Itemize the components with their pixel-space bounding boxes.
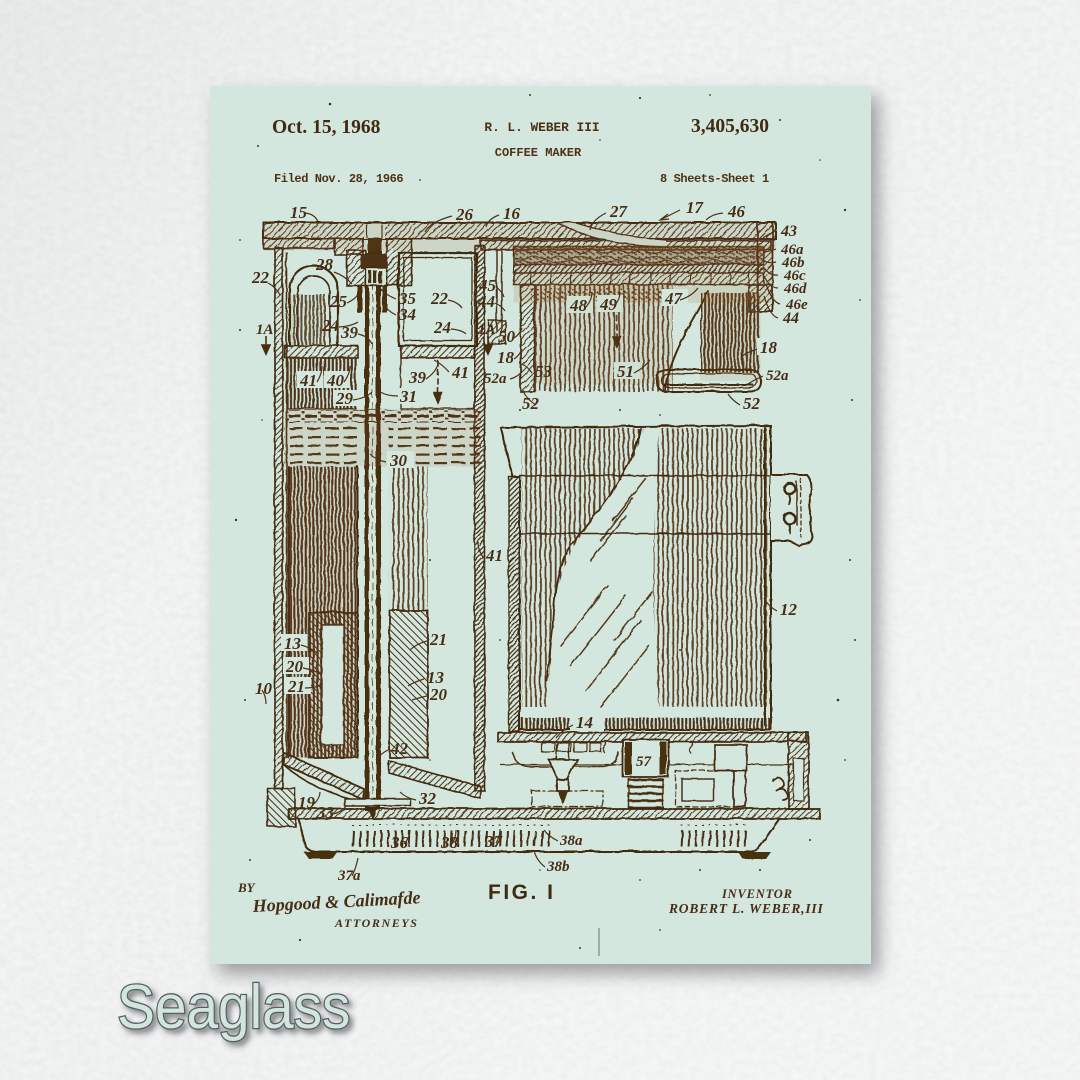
svg-text:15: 15: [290, 203, 308, 222]
svg-text:18: 18: [497, 348, 515, 367]
svg-text:22: 22: [430, 289, 449, 308]
svg-text:31: 31: [399, 387, 417, 406]
svg-text:37: 37: [484, 832, 504, 851]
svg-text:52: 52: [743, 394, 761, 413]
svg-text:41: 41: [485, 546, 503, 565]
svg-text:R. L. WEBER III: R. L. WEBER III: [484, 120, 599, 135]
svg-text:27: 27: [609, 202, 629, 221]
svg-text:12: 12: [780, 600, 798, 619]
svg-text:19: 19: [298, 793, 316, 812]
svg-text:53: 53: [535, 362, 553, 381]
svg-text:41: 41: [299, 371, 317, 390]
svg-text:1A: 1A: [478, 322, 496, 338]
svg-text:10: 10: [255, 679, 273, 698]
svg-text:24: 24: [321, 316, 339, 335]
svg-text:16: 16: [503, 204, 521, 223]
svg-text:22: 22: [251, 268, 270, 287]
svg-text:BY: BY: [237, 880, 256, 895]
svg-text:34: 34: [398, 305, 416, 324]
svg-text:32: 32: [418, 789, 437, 808]
svg-text:47: 47: [664, 289, 684, 308]
svg-text:26: 26: [455, 205, 474, 224]
svg-text:14: 14: [576, 713, 593, 732]
svg-text:38a: 38a: [559, 833, 583, 849]
svg-text:57: 57: [636, 754, 652, 770]
svg-text:FIG. I: FIG. I: [488, 881, 556, 904]
svg-text:44: 44: [782, 310, 799, 327]
svg-text:ATTORNEYS: ATTORNEYS: [334, 916, 419, 930]
svg-text:30: 30: [389, 451, 408, 470]
svg-text:20: 20: [429, 685, 448, 704]
svg-text:21: 21: [287, 677, 305, 696]
svg-text:13: 13: [284, 634, 302, 653]
svg-text:18: 18: [760, 338, 778, 357]
svg-text:46: 46: [727, 202, 746, 221]
svg-text:COFFEE MAKER: COFFEE MAKER: [495, 146, 582, 160]
svg-text:52a: 52a: [484, 371, 507, 387]
svg-text:46d: 46d: [783, 281, 807, 297]
svg-text:25: 25: [329, 292, 348, 311]
svg-text:43: 43: [780, 223, 797, 240]
svg-text:INVENTOR: INVENTOR: [721, 887, 793, 901]
svg-text:38b: 38b: [546, 859, 570, 875]
svg-text:17: 17: [686, 198, 705, 217]
svg-text:50: 50: [498, 327, 516, 346]
svg-text:40: 40: [326, 371, 345, 390]
svg-text:44: 44: [477, 292, 495, 311]
svg-text:42: 42: [390, 739, 409, 758]
svg-text:8 Sheets-Sheet 1: 8 Sheets-Sheet 1: [660, 172, 769, 186]
svg-text:21: 21: [429, 630, 447, 649]
svg-text:39: 39: [408, 368, 427, 387]
svg-text:3,405,630: 3,405,630: [691, 116, 769, 137]
svg-text:Seaglass: Seaglass: [117, 972, 350, 1042]
svg-text:41: 41: [451, 363, 469, 382]
svg-text:37a: 37a: [337, 868, 361, 884]
svg-text:28: 28: [315, 255, 334, 274]
svg-text:Filed Nov. 28, 1966: Filed Nov. 28, 1966: [274, 172, 403, 186]
svg-text:ROBERT L. WEBER,III: ROBERT L. WEBER,III: [668, 901, 824, 916]
svg-text:51: 51: [617, 362, 634, 381]
svg-text:33: 33: [316, 803, 335, 822]
svg-text:48: 48: [569, 296, 588, 315]
svg-text:29: 29: [335, 389, 354, 408]
svg-text:24: 24: [433, 318, 451, 337]
svg-text:52: 52: [522, 394, 540, 413]
svg-text:Oct. 15, 1968: Oct. 15, 1968: [272, 117, 381, 138]
svg-text:52a: 52a: [766, 368, 789, 384]
svg-text:1A: 1A: [256, 322, 274, 338]
svg-text:20: 20: [285, 657, 304, 676]
